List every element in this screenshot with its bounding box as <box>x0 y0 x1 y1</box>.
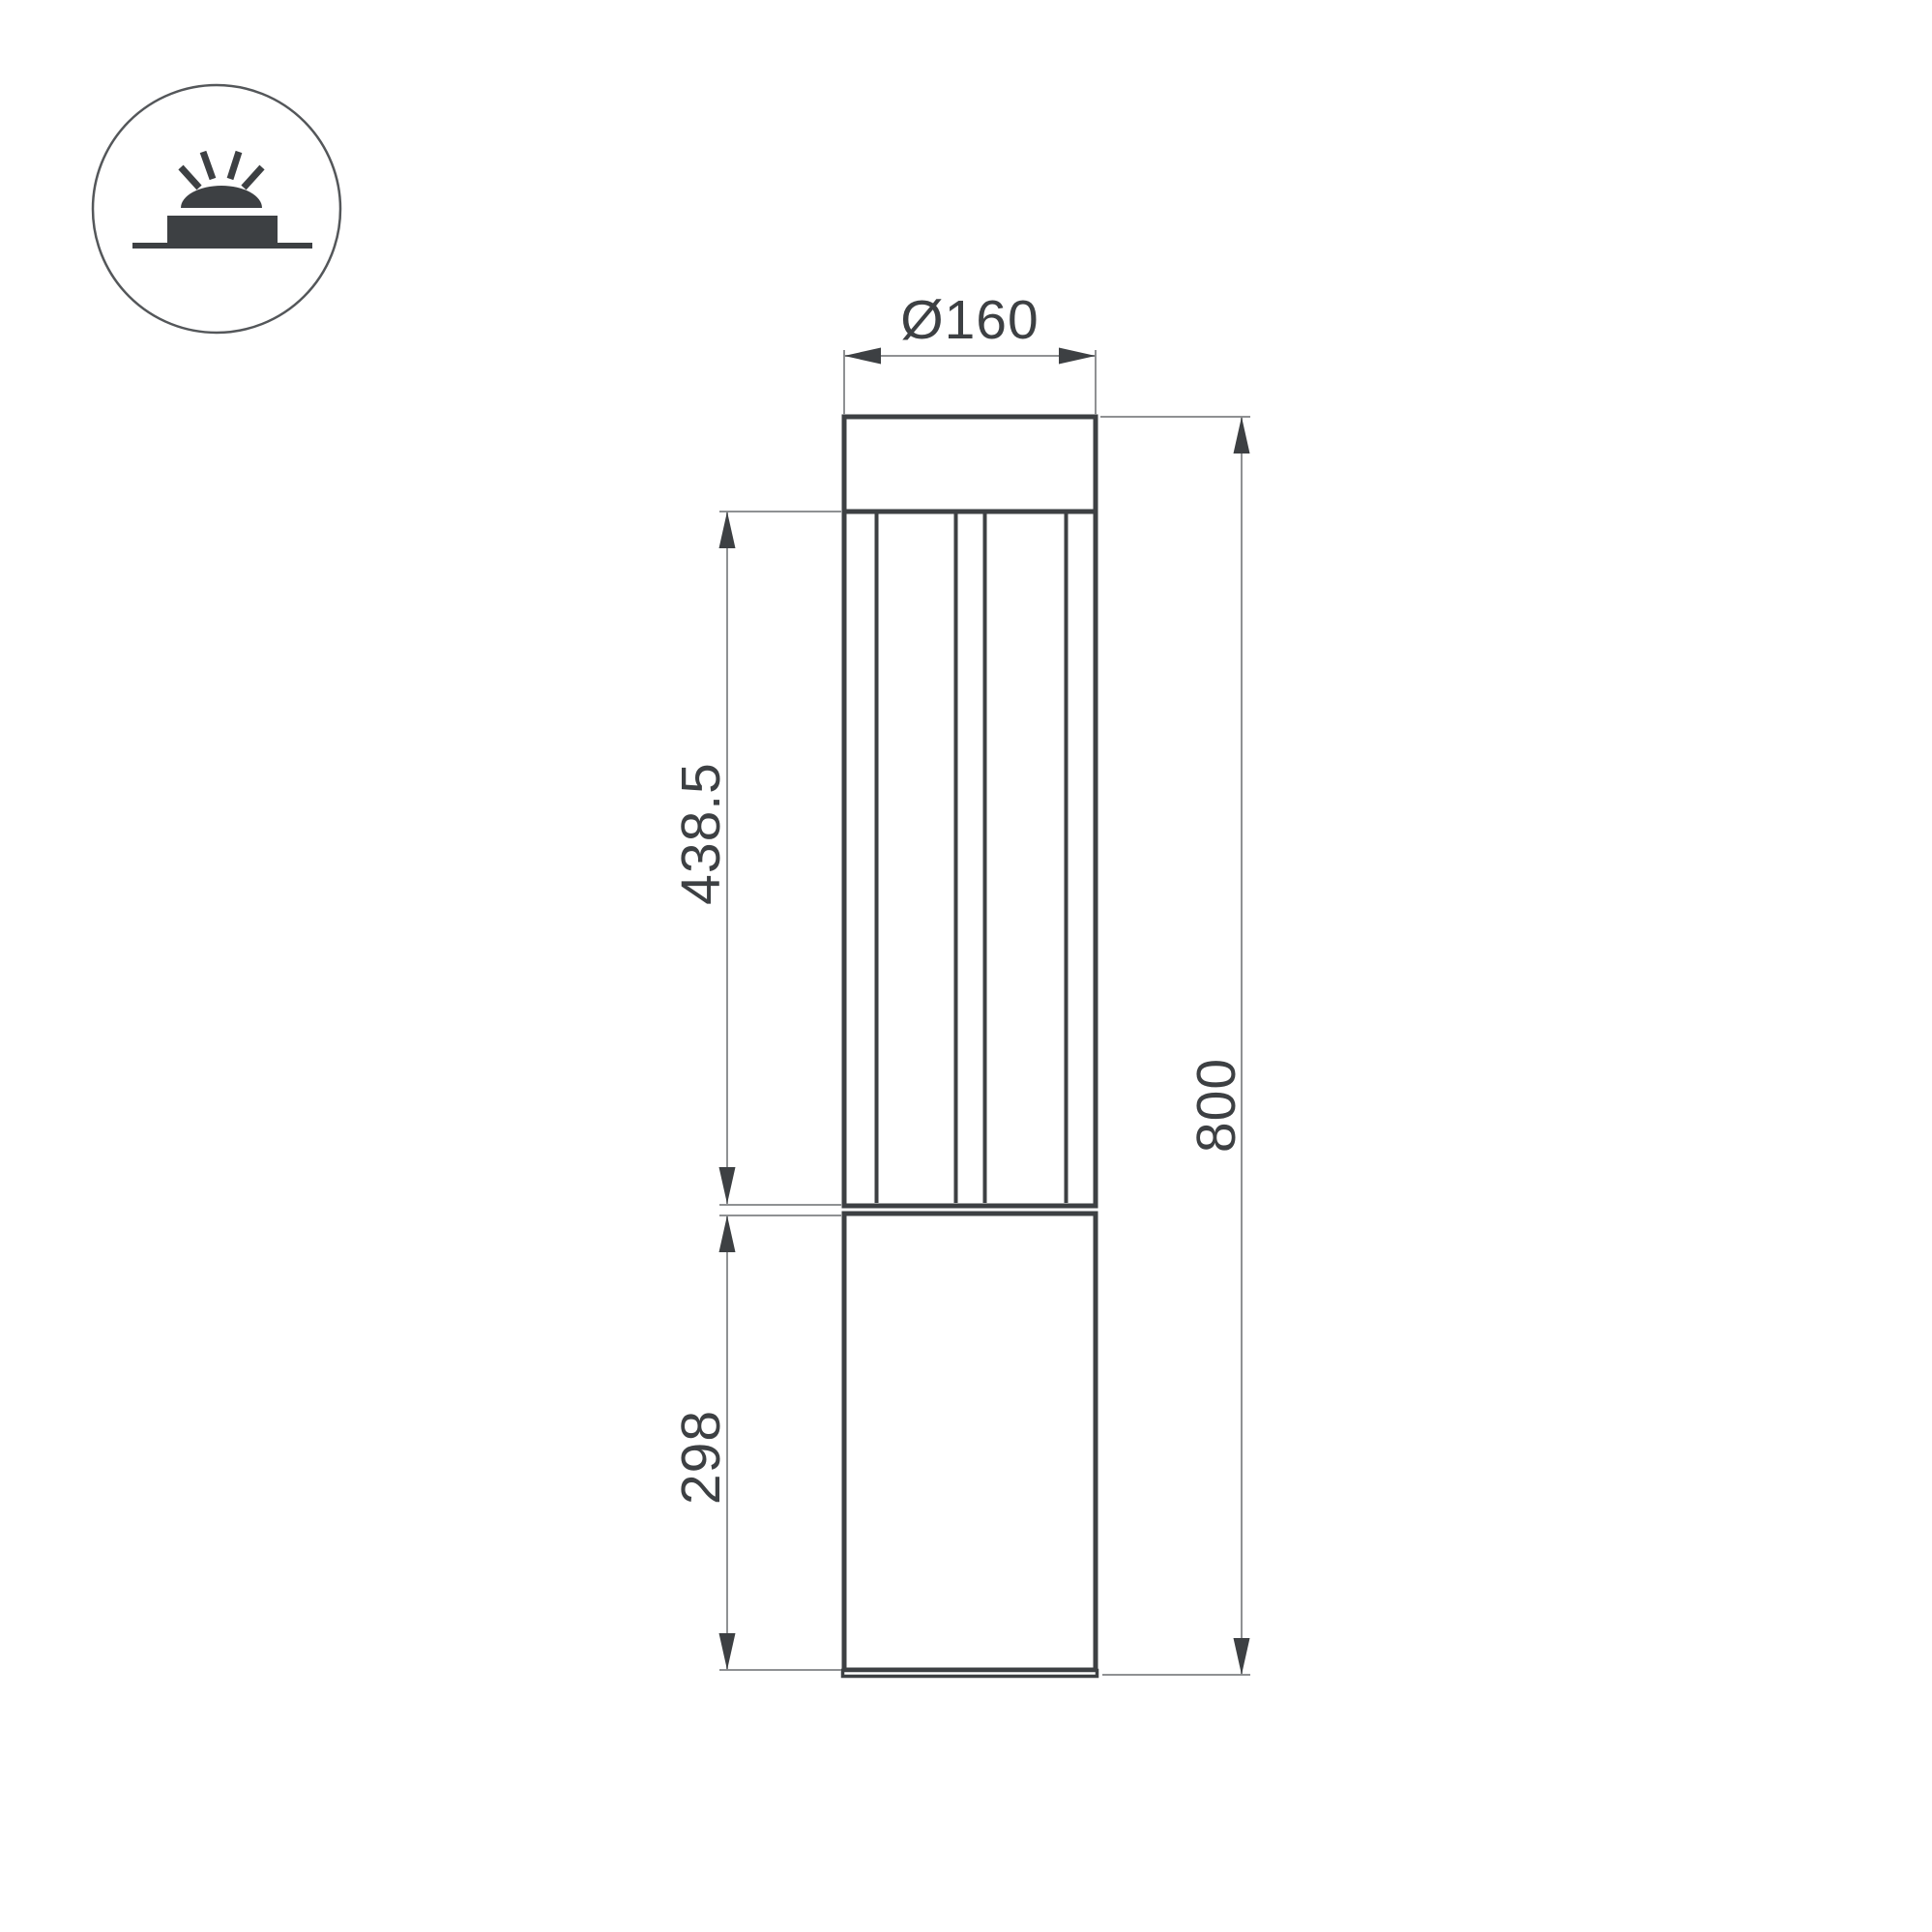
bollard-outline <box>843 417 1098 1677</box>
light-ray <box>244 167 262 188</box>
arrowhead-down <box>1234 1638 1250 1675</box>
dim-lamp-height: 438.5 <box>670 512 841 1205</box>
dim-label-diameter: Ø160 <box>900 289 1039 351</box>
ground-light-icon <box>93 85 340 333</box>
icon-circle-border <box>93 85 340 333</box>
arrowhead-up <box>719 1215 736 1252</box>
arrowhead-down <box>719 1633 736 1670</box>
light-ray <box>181 167 199 188</box>
technical-drawing-canvas: Ø160 438.5 298 800 <box>0 0 1932 1932</box>
lamp-body-shape <box>167 216 278 244</box>
dim-base-height: 298 <box>670 1215 841 1670</box>
dim-label-total-height: 800 <box>1186 1058 1247 1153</box>
dim-label-base-height: 298 <box>670 1410 732 1505</box>
lamp-dome-shape <box>181 186 262 208</box>
bollard-base-section <box>844 1214 1096 1670</box>
arrowhead-up <box>1234 417 1250 454</box>
dim-label-lamp-height: 438.5 <box>670 762 732 905</box>
light-ray <box>230 152 239 179</box>
bollard-lamp-section <box>844 512 1096 1206</box>
arrowhead-right <box>1059 348 1096 365</box>
light-rays-icon <box>181 152 262 188</box>
dim-diameter: Ø160 <box>844 289 1096 415</box>
ground-line-shape <box>132 243 312 249</box>
bollard-bottom-plate <box>843 1671 1098 1677</box>
arrowhead-up <box>719 512 736 548</box>
arrowhead-left <box>844 348 881 365</box>
bollard-cap <box>844 417 1096 512</box>
light-ray <box>203 152 213 179</box>
arrowhead-down <box>719 1167 736 1204</box>
dim-total-height: 800 <box>1100 417 1250 1675</box>
